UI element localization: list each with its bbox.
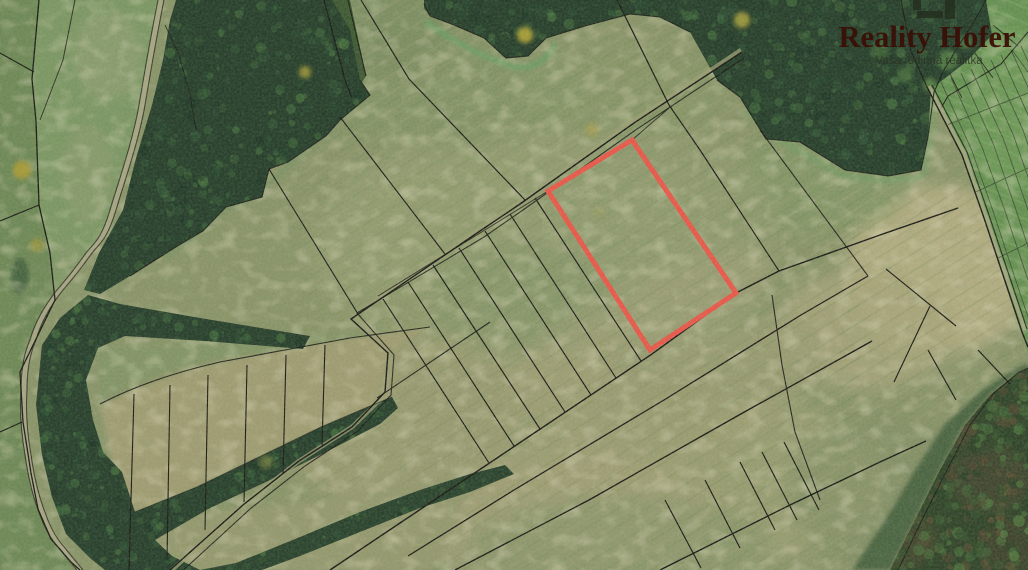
svg-text:Vaša rodinná realitka: Vaša rodinná realitka	[875, 55, 983, 67]
svg-text:Reality Hofer: Reality Hofer	[839, 20, 1016, 54]
